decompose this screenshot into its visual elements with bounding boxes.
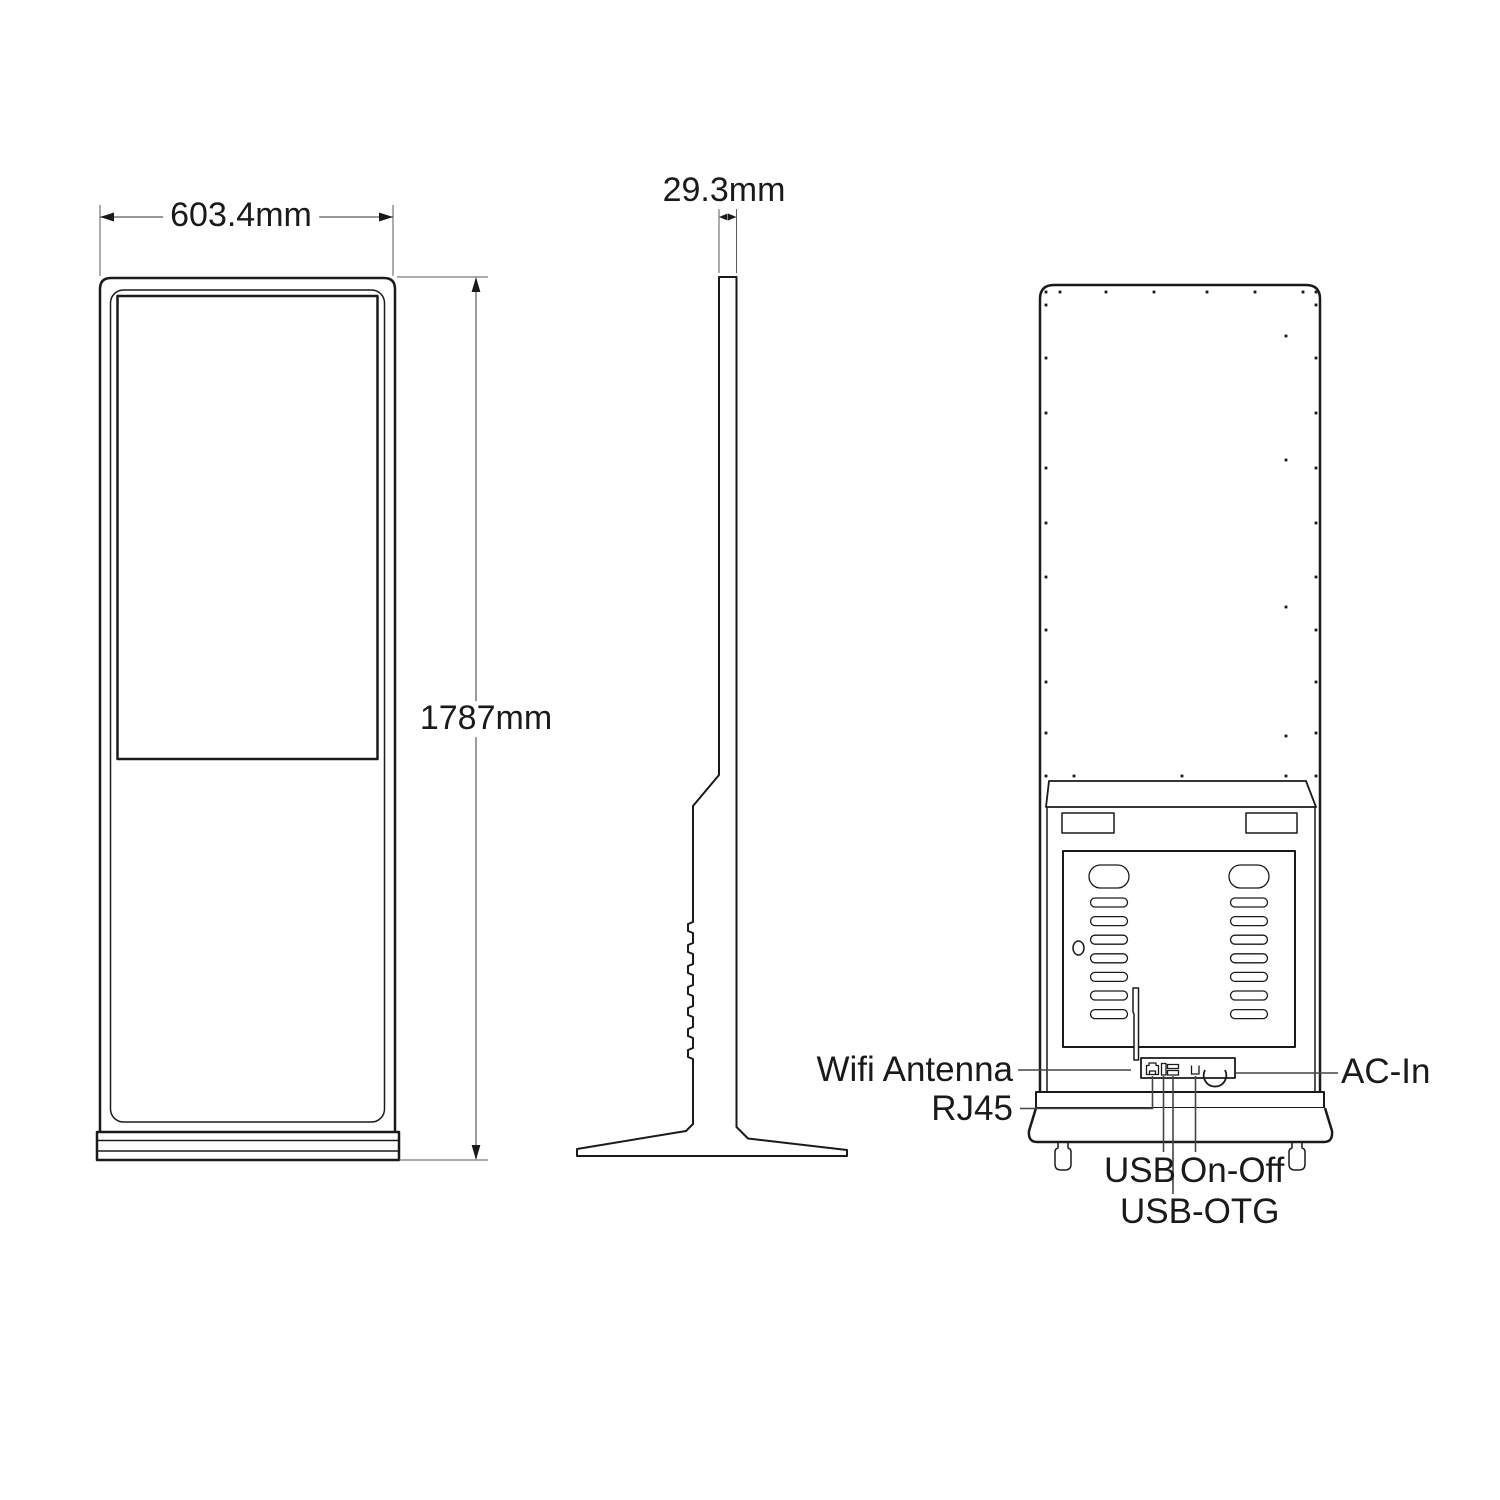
screw-dot bbox=[1315, 775, 1318, 778]
screw-dot bbox=[1045, 522, 1048, 525]
screw-dot bbox=[1285, 775, 1288, 778]
rear-handle-slot-right bbox=[1246, 813, 1297, 833]
vent-slot-small bbox=[1231, 898, 1268, 907]
rear-bottom-band bbox=[1036, 1092, 1324, 1108]
screw-dot bbox=[1045, 412, 1048, 415]
side-profile-outline bbox=[577, 277, 847, 1156]
screw-dot bbox=[1315, 291, 1318, 294]
rear-foot-left bbox=[1055, 1142, 1071, 1170]
screw-dot bbox=[1105, 291, 1108, 294]
screw-dot bbox=[1059, 291, 1062, 294]
rear-vent-slots bbox=[1089, 865, 1269, 1019]
rear-base bbox=[1029, 1108, 1332, 1142]
screw-dot bbox=[1181, 775, 1184, 778]
ac-in-label: AC-In bbox=[1341, 1054, 1430, 1091]
front-height-value: 1787mm bbox=[413, 701, 559, 737]
vent-slot-small bbox=[1091, 898, 1128, 907]
screw-dot bbox=[1315, 681, 1318, 684]
vent-slot-large bbox=[1089, 865, 1129, 888]
rear-screws bbox=[1045, 291, 1318, 778]
screw-dot bbox=[1285, 335, 1288, 338]
screw-dot bbox=[1045, 681, 1048, 684]
screw-dot bbox=[1045, 629, 1048, 632]
screw-dot bbox=[1302, 291, 1305, 294]
wifi-antenna-label: Wifi Antenna bbox=[713, 1052, 1013, 1089]
side-depth-value: 29.3mm bbox=[656, 173, 793, 209]
screw-dot bbox=[1315, 412, 1318, 415]
screw-dot bbox=[1315, 467, 1318, 470]
screw-dot bbox=[1045, 732, 1048, 735]
screw-dot bbox=[1285, 606, 1288, 609]
screw-dot bbox=[1285, 735, 1288, 738]
screw-dot bbox=[1315, 629, 1318, 632]
side-view bbox=[577, 207, 847, 1156]
front-bezel-line bbox=[111, 290, 385, 1122]
front-screen bbox=[118, 296, 378, 759]
rear-panel-outline bbox=[1040, 285, 1320, 1092]
vent-slot-large bbox=[1229, 865, 1269, 888]
rear-handle-slot-left bbox=[1062, 813, 1114, 833]
usb-label: USB bbox=[1104, 1153, 1176, 1190]
technical-drawing-canvas: 603.4mm 1787mm 29.3mm Wifi Antenna RJ45 … bbox=[0, 0, 1500, 1500]
front-width-value: 603.4mm bbox=[163, 198, 319, 234]
vent-slot-small bbox=[1231, 935, 1268, 944]
vent-slot-small bbox=[1091, 954, 1128, 963]
front-view bbox=[97, 205, 488, 1160]
on-off-label: On-Off bbox=[1180, 1153, 1284, 1190]
front-base bbox=[97, 1132, 399, 1160]
vent-slot-small bbox=[1091, 991, 1128, 1000]
rj45-label: RJ45 bbox=[713, 1091, 1013, 1128]
rear-view bbox=[1018, 285, 1338, 1194]
screw-dot bbox=[1315, 357, 1318, 360]
screw-dot bbox=[1254, 291, 1257, 294]
rear-thumbscrew bbox=[1073, 941, 1084, 955]
screw-dot bbox=[1045, 576, 1048, 579]
wifi-antenna-rod bbox=[1133, 988, 1139, 1060]
screw-dot bbox=[1315, 732, 1318, 735]
screw-dot bbox=[1206, 291, 1209, 294]
vent-slot-small bbox=[1091, 972, 1128, 981]
screw-dot bbox=[1315, 304, 1318, 307]
vent-slot-small bbox=[1231, 917, 1268, 926]
rear-compartment-bevel bbox=[1046, 781, 1316, 807]
screw-dot bbox=[1045, 775, 1048, 778]
screw-dot bbox=[1315, 522, 1318, 525]
screw-dot bbox=[1285, 459, 1288, 462]
front-cabinet-outline bbox=[100, 278, 395, 1132]
screw-dot bbox=[1153, 291, 1156, 294]
screw-dot bbox=[1045, 304, 1048, 307]
vent-slot-small bbox=[1091, 917, 1128, 926]
vent-slot-small bbox=[1231, 1010, 1268, 1019]
vent-slot-small bbox=[1091, 935, 1128, 944]
rear-vent-panel bbox=[1063, 851, 1295, 1047]
vent-slot-small bbox=[1231, 991, 1268, 1000]
screw-dot bbox=[1045, 357, 1048, 360]
screw-dot bbox=[1073, 775, 1076, 778]
side-depth-dimension bbox=[719, 207, 737, 273]
vent-slot-small bbox=[1231, 954, 1268, 963]
rear-foot-right bbox=[1289, 1142, 1305, 1170]
vent-slot-small bbox=[1091, 1010, 1128, 1019]
screw-dot bbox=[1045, 291, 1048, 294]
vent-slot-small bbox=[1231, 972, 1268, 981]
usb-otg-label: USB-OTG bbox=[1120, 1194, 1279, 1231]
screw-dot bbox=[1315, 576, 1318, 579]
screw-dot bbox=[1045, 467, 1048, 470]
